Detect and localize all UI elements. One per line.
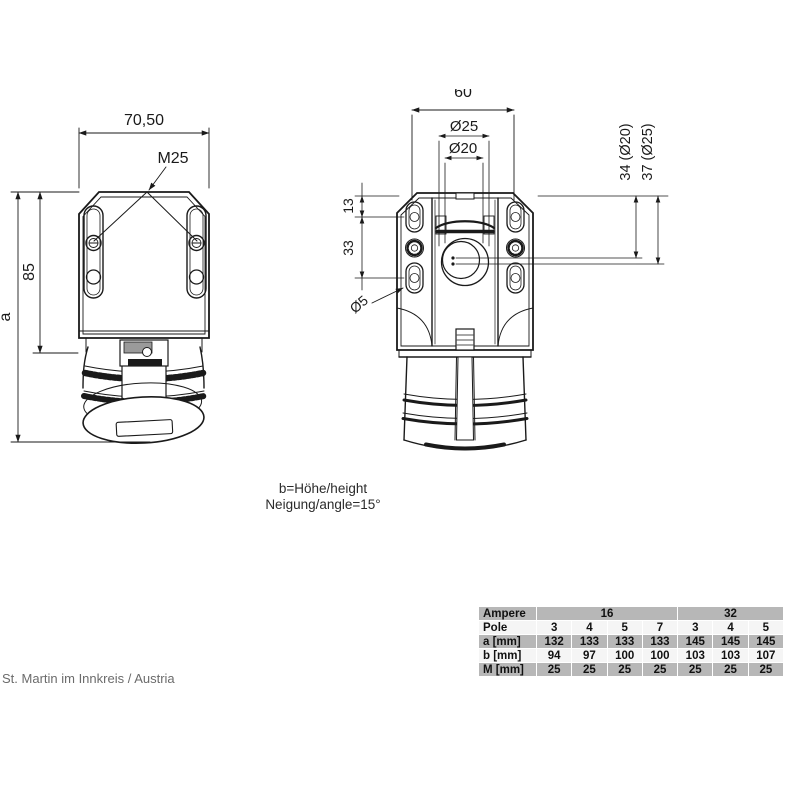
- dim-d5: Ø5: [346, 288, 403, 316]
- a-cell: 145: [713, 635, 747, 648]
- b-cell: 97: [572, 649, 606, 662]
- pole-cell: 5: [749, 621, 783, 634]
- a-cell: 133: [643, 635, 677, 648]
- a-cell: 132: [537, 635, 571, 648]
- pole-cell: 5: [608, 621, 642, 634]
- note-angle: Neigung/angle=15°: [238, 497, 408, 513]
- dim-top-60: 60: [412, 76, 514, 200]
- dim-d20-label: Ø20: [449, 140, 477, 157]
- pole-cell: 3: [678, 621, 712, 634]
- socket-body-side: [81, 340, 205, 446]
- table-row-b: b [mm] 94 97 100 100 103 103 107: [479, 649, 783, 662]
- a-cell: 145: [678, 635, 712, 648]
- b-cell: 103: [713, 649, 747, 662]
- table-row-a: a [mm] 132 133 133 133 145 145 145: [479, 635, 783, 648]
- right-view: 60 Ø25 Ø20 13 33: [340, 76, 668, 450]
- manufacturer-location: St. Martin im Innkreis / Austria: [2, 671, 232, 683]
- a-cell: 133: [572, 635, 606, 648]
- dim-d20: Ø20: [445, 140, 483, 243]
- flange-left: [406, 202, 424, 293]
- dim-13-33: 13 33: [340, 183, 404, 290]
- dim-d25-label: Ø25: [450, 118, 478, 135]
- pole-cell: 7: [643, 621, 677, 634]
- m-cell: 25: [678, 663, 712, 676]
- socket-body-front: [403, 329, 527, 450]
- flange-right: [507, 202, 525, 293]
- dim-d5-label: Ø5: [346, 292, 371, 316]
- drawing-notes: b=Höhe/height Neigung/angle=15°: [238, 481, 408, 513]
- a-cell: 133: [608, 635, 642, 648]
- spec-table: Ampere 16 32 Pole 3 4 5 7 3 4 5 a [mm] 1…: [478, 606, 784, 677]
- group-32: 32: [678, 607, 783, 620]
- dim-height-85: 85: [21, 192, 78, 353]
- b-cell: 103: [678, 649, 712, 662]
- m-cell: 25: [608, 663, 642, 676]
- latch-mechanism: [120, 340, 168, 366]
- b-cell: 100: [608, 649, 642, 662]
- m-cell: 25: [713, 663, 747, 676]
- m-cell: 25: [749, 663, 783, 676]
- note-height: b=Höhe/height: [238, 481, 408, 497]
- dim-d25: Ø25: [439, 118, 489, 246]
- dim-85-label: 85: [21, 263, 38, 281]
- left-view: 70,50 M25 85 a: [0, 112, 209, 446]
- pole-cell: 3: [537, 621, 571, 634]
- dim-thread-m25: M25: [149, 150, 189, 190]
- a-cell: 145: [749, 635, 783, 648]
- thread-label: M25: [157, 150, 188, 167]
- dim-width-label: 70,50: [124, 112, 164, 129]
- pole-cell: 4: [713, 621, 747, 634]
- table-row-ampere: Ampere 16 32: [479, 607, 783, 620]
- datasheet-page: 70,50 M25 85 a: [0, 0, 790, 790]
- table-row-m: M [mm] 25 25 25 25 25 25 25: [479, 663, 783, 676]
- housing-front-outline: [397, 193, 533, 350]
- cable-entry-circles: [442, 239, 489, 286]
- mounting-slot-left: [84, 206, 103, 298]
- dim-33-label: 33: [340, 240, 356, 256]
- dim-13-label: 13: [340, 198, 356, 214]
- dim-37-label: 37 (Ø25): [640, 123, 656, 180]
- pole-cell: 4: [572, 621, 606, 634]
- m-cell: 25: [643, 663, 677, 676]
- ampere-label: Ampere: [479, 607, 536, 620]
- row-a-label: a [mm]: [479, 635, 536, 648]
- dim-a-label: a: [0, 312, 14, 321]
- b-cell: 94: [537, 649, 571, 662]
- dim-34-label: 34 (Ø20): [618, 123, 634, 180]
- table-row-pole: Pole 3 4 5 7 3 4 5: [479, 621, 783, 634]
- b-cell: 100: [643, 649, 677, 662]
- housing-outline: [79, 192, 209, 338]
- m-cell: 25: [572, 663, 606, 676]
- row-m-label: M [mm]: [479, 663, 536, 676]
- row-b-label: b [mm]: [479, 649, 536, 662]
- latch-tab: [456, 329, 474, 350]
- group-16: 16: [537, 607, 677, 620]
- pole-label: Pole: [479, 621, 536, 634]
- m-cell: 25: [537, 663, 571, 676]
- mounting-slot-right: [187, 206, 206, 298]
- dim-width-7050: 70,50: [79, 112, 209, 188]
- b-cell: 107: [749, 649, 783, 662]
